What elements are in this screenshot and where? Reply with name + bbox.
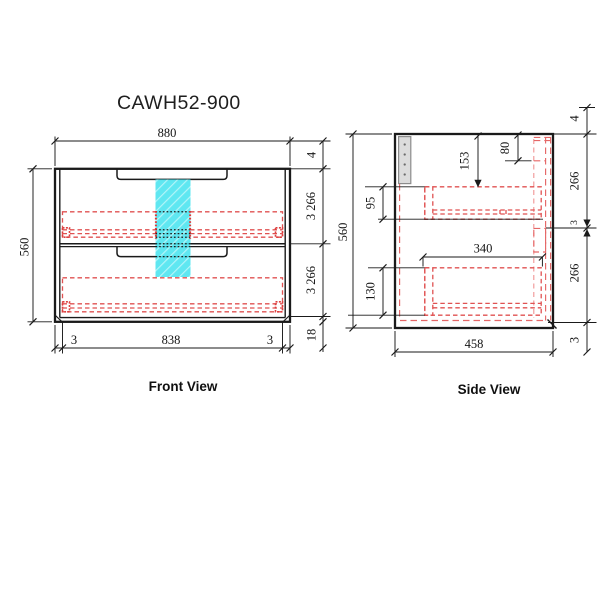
front-view-label: Front View bbox=[149, 379, 218, 394]
side-front-lower-dim: 266 bbox=[568, 264, 582, 283]
drawing-title: CAWH52-900 bbox=[117, 92, 241, 114]
front-drawer2-box bbox=[63, 278, 283, 312]
wall-mount-bracket bbox=[399, 137, 411, 184]
side-mid-gap-dim: 3 bbox=[570, 220, 580, 225]
front-top-gap-dim: 4 bbox=[305, 151, 319, 158]
front-drawer2-dim: 3 266 bbox=[304, 266, 318, 294]
side-hidden-lines bbox=[400, 137, 552, 321]
side-view: 560 95 130 153 80 340 458 4 266 3 266 3 … bbox=[336, 104, 597, 397]
side-lower-box-height-dim: 130 bbox=[364, 282, 378, 301]
side-drawer1-box bbox=[425, 187, 541, 219]
front-kick-dim: 18 bbox=[305, 329, 319, 342]
side-handle-recess-dim: 80 bbox=[498, 142, 512, 155]
side-drawer-depth-dim: 340 bbox=[474, 242, 493, 256]
front-bottom-gap-left-dim: 3 bbox=[71, 333, 77, 347]
side-cabinet-outline bbox=[395, 134, 553, 328]
side-top-gap-dim: 4 bbox=[568, 115, 582, 122]
side-dimension-lines bbox=[346, 104, 597, 357]
side-top-to-box-dim: 153 bbox=[458, 152, 472, 171]
front-view: 880 560 4 3 266 3 266 18 3 838 3 Front V… bbox=[18, 126, 331, 394]
side-bottom-gap-dim: 3 bbox=[568, 337, 582, 343]
drawer1-handle-notch bbox=[117, 169, 227, 179]
plumbing-cutout-highlight bbox=[156, 179, 191, 277]
side-upper-box-height-dim: 95 bbox=[364, 197, 378, 210]
front-bottom-width-dim: 838 bbox=[162, 333, 181, 347]
front-height-dim: 560 bbox=[18, 238, 32, 257]
front-bottom-gap-right-dim: 3 bbox=[267, 333, 273, 347]
side-height-dim: 560 bbox=[336, 223, 350, 242]
side-drawer2-handle-recess bbox=[534, 228, 546, 252]
front-width-dim: 880 bbox=[158, 126, 177, 140]
side-view-label: Side View bbox=[458, 382, 521, 397]
side-drawer2-box bbox=[425, 268, 541, 315]
side-front-upper-dim: 266 bbox=[568, 172, 582, 191]
cabinet-technical-drawing: CAWH52-900 bbox=[0, 0, 600, 600]
side-cabinet-depth-dim: 458 bbox=[465, 337, 484, 351]
front-drawer1-dim: 3 266 bbox=[304, 192, 318, 220]
